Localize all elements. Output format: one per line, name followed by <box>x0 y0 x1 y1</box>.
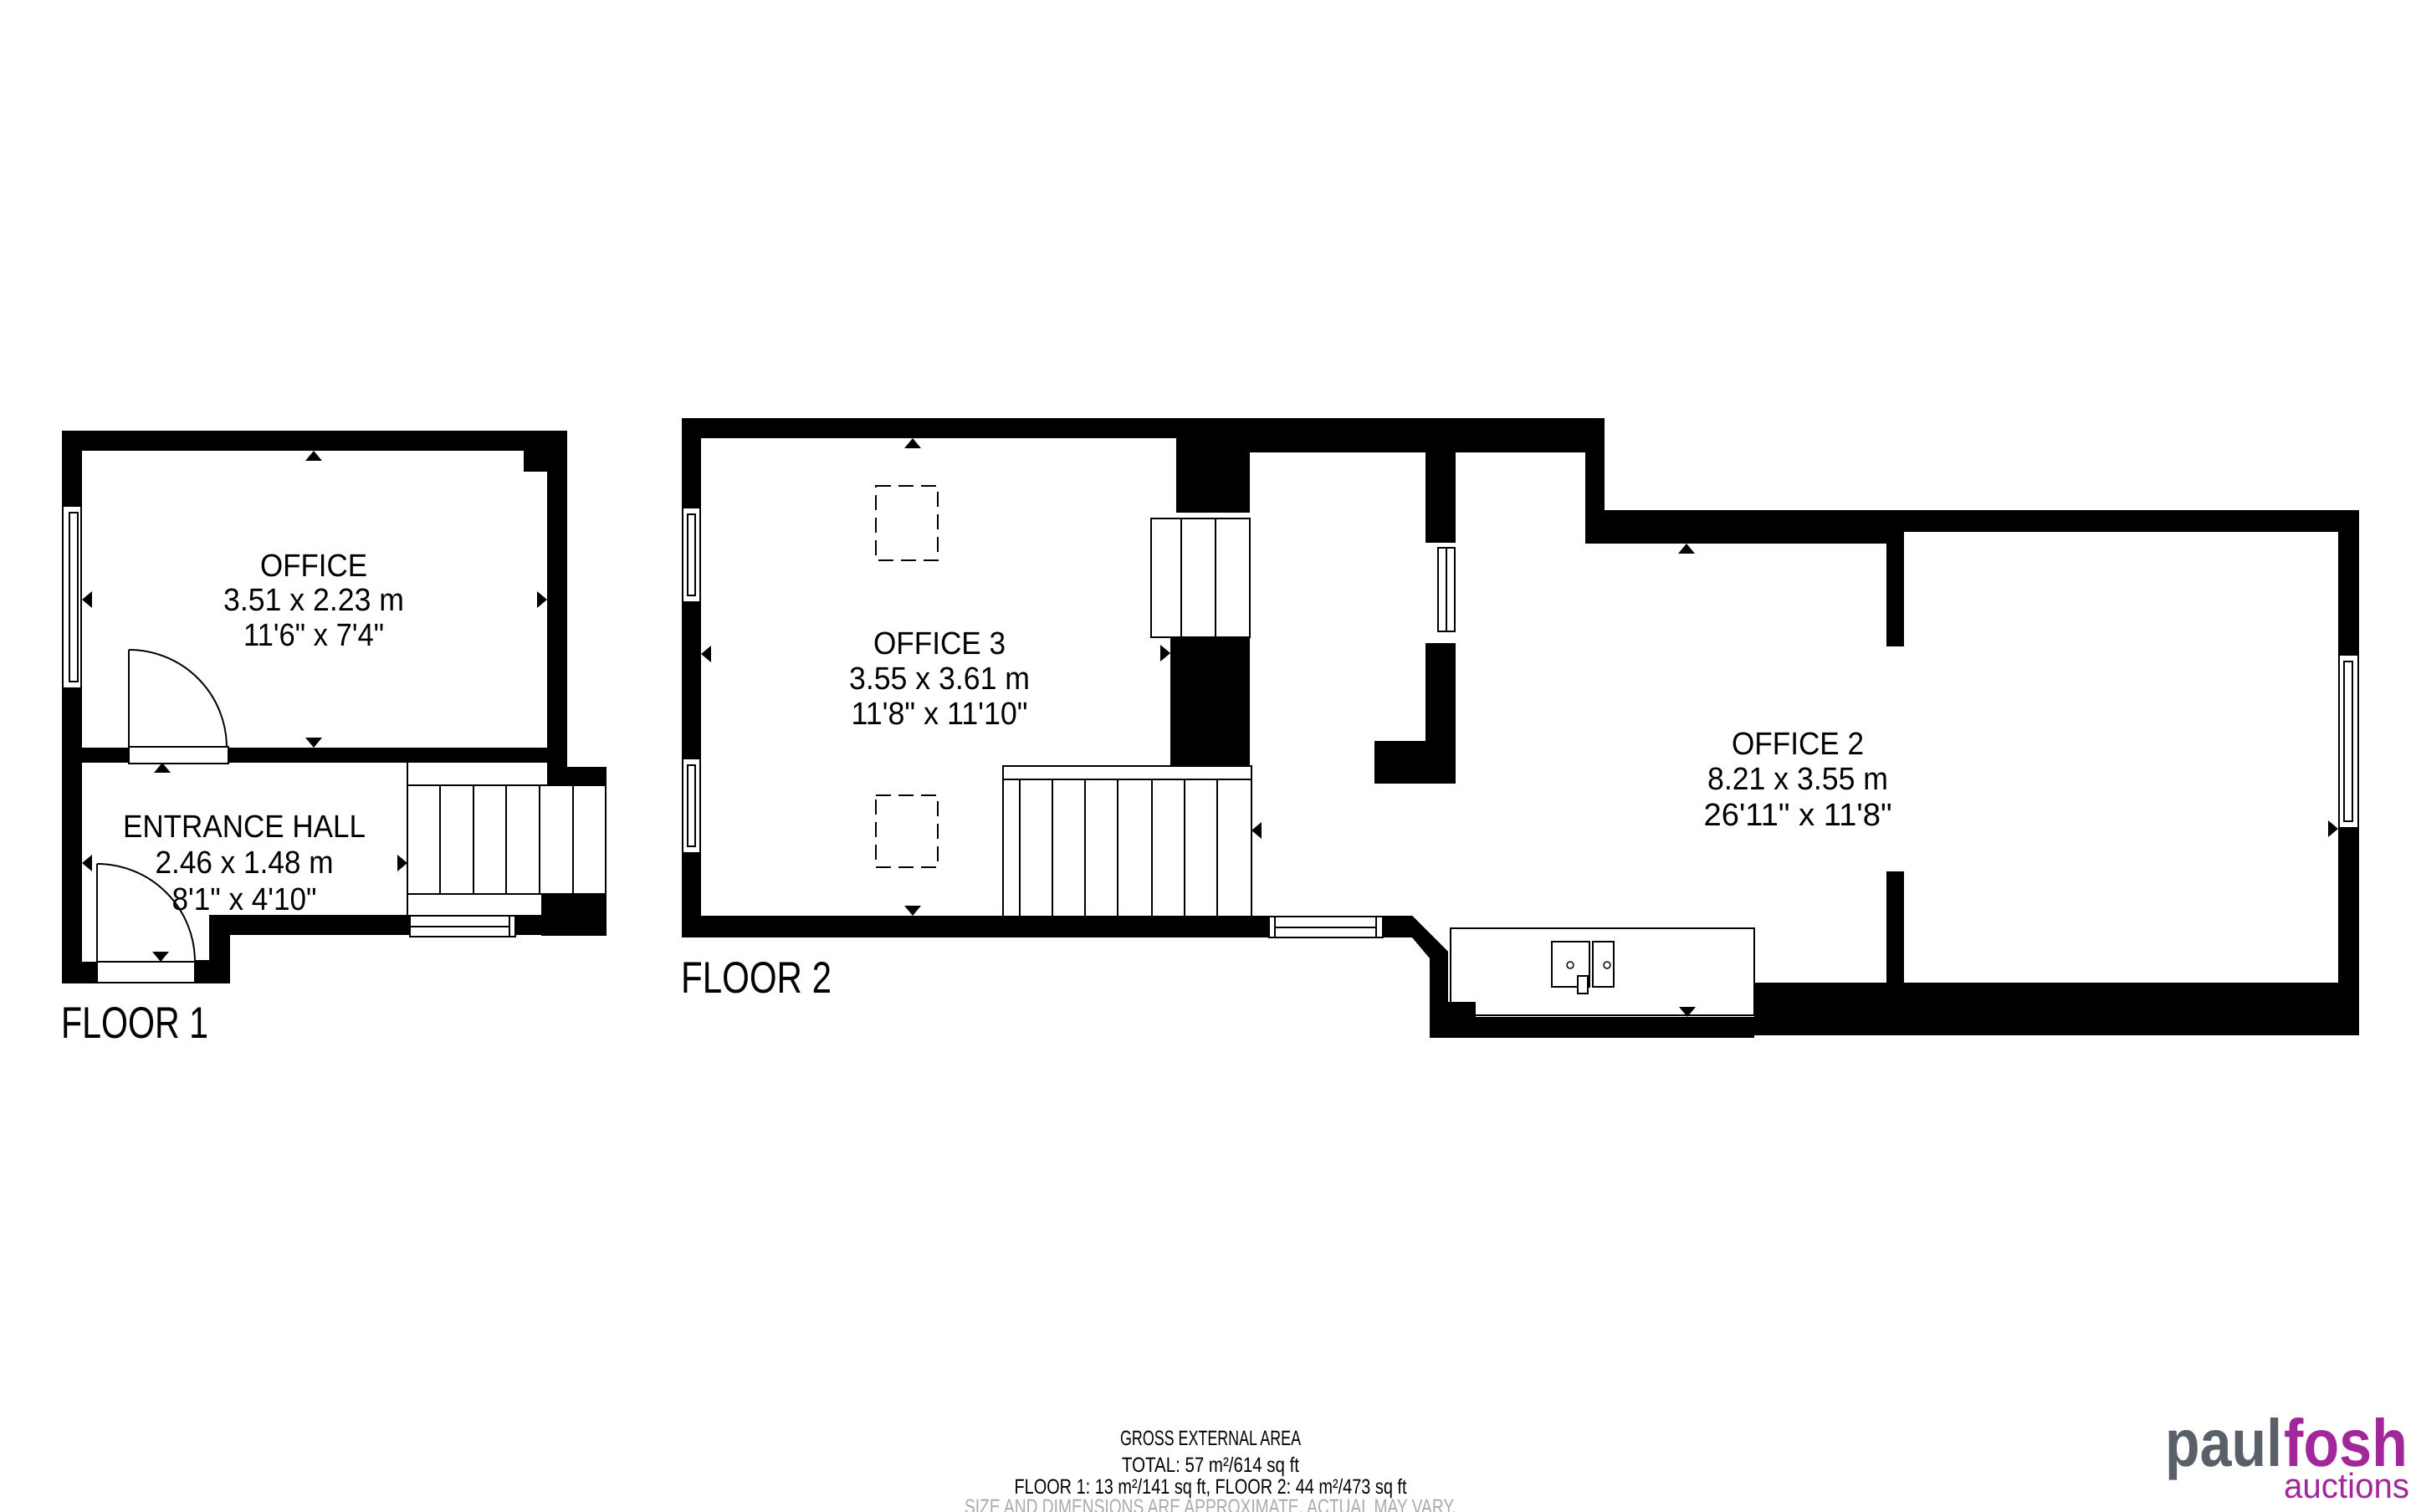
svg-text:FLOOR 1: FLOOR 1 <box>61 999 208 1048</box>
svg-text:TOTAL: 57 m²/614 sq ft: TOTAL: 57 m²/614 sq ft <box>1122 1453 1299 1477</box>
svg-text:OFFICE 3: OFFICE 3 <box>873 626 1006 661</box>
svg-text:3.51 x 2.23 m: 3.51 x 2.23 m <box>223 583 404 618</box>
svg-text:ENTRANCE HALL: ENTRANCE HALL <box>123 810 366 845</box>
svg-text:OFFICE 2: OFFICE 2 <box>1732 727 1864 762</box>
svg-text:2.46 x 1.48 m: 2.46 x 1.48 m <box>156 845 334 881</box>
svg-text:FLOOR 2: FLOOR 2 <box>681 953 832 1003</box>
svg-text:auctions: auctions <box>2284 1466 2409 1505</box>
svg-text:GROSS EXTERNAL AREA: GROSS EXTERNAL AREA <box>1120 1427 1301 1450</box>
svg-text:26'11" x 11'8": 26'11" x 11'8" <box>1704 798 1892 833</box>
svg-text:11'8" x 11'10": 11'8" x 11'10" <box>852 697 1028 732</box>
svg-text:8.21 x 3.55 m: 8.21 x 3.55 m <box>1707 762 1888 797</box>
svg-text:OFFICE: OFFICE <box>260 549 367 584</box>
svg-text:SIZE AND DIMENSIONS ARE APPROX: SIZE AND DIMENSIONS ARE APPROXIMATE, ACT… <box>965 1495 1456 1512</box>
svg-text:paul: paul <box>2165 1406 2282 1480</box>
svg-text:8'1" x 4'10": 8'1" x 4'10" <box>172 882 317 917</box>
svg-text:3.55 x 3.61 m: 3.55 x 3.61 m <box>849 661 1030 697</box>
svg-text:11'6" x 7'4": 11'6" x 7'4" <box>243 618 384 653</box>
